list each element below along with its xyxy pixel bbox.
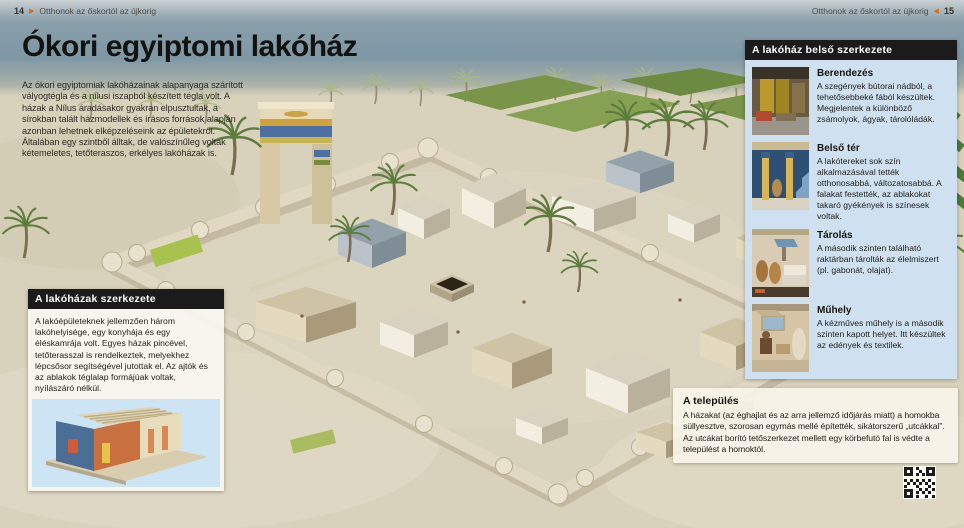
page-title: Ókori egyiptomi lakóház bbox=[22, 30, 357, 64]
section-furnishings: Berendezés A szegények bútorai nádból, a… bbox=[752, 67, 950, 135]
furnishings-photo bbox=[752, 67, 809, 135]
book-title-right: Otthonok az őskortól az újkorig bbox=[812, 6, 929, 16]
section-text: A lakótereket sok szín alkalmazásával te… bbox=[817, 156, 950, 222]
house-structure-text: A lakóépületeknek jellemzően három lakóh… bbox=[28, 309, 224, 399]
workshop-photo bbox=[752, 304, 809, 372]
page-header-right: Otthonok az őskortól az újkorig ◀ 15 bbox=[812, 6, 954, 16]
book-spread: 14 ▶ Otthonok az őskortól az újkorig Ott… bbox=[0, 0, 964, 528]
page-header-left: 14 ▶ Otthonok az őskortól az újkorig bbox=[14, 6, 156, 16]
section-storage: Tárolás A második szinten található rakt… bbox=[752, 229, 950, 297]
page-number-right: 15 bbox=[944, 6, 954, 16]
book-title-left: Otthonok az őskortól az újkorig bbox=[39, 6, 156, 16]
forward-arrow-icon: ▶ bbox=[29, 8, 34, 15]
qr-code bbox=[903, 466, 936, 499]
interior-structure-header: A lakóház belső szerkezete bbox=[745, 40, 957, 60]
section-title: Berendezés bbox=[817, 68, 950, 79]
section-title: Tárolás bbox=[817, 230, 950, 241]
house-structure-header: A lakóházak szerkezete bbox=[28, 289, 224, 309]
section-interior: Belső tér A lakótereket sok szín alkalma… bbox=[752, 142, 950, 222]
interior-structure-panel: A lakóház belső szerkezete bbox=[745, 40, 957, 379]
cutaway-model-graphic bbox=[32, 399, 220, 487]
settlement-text: A házakat (az éghajlat és az arra jellem… bbox=[683, 410, 948, 455]
settlement-box: A település A házakat (az éghajlat és az… bbox=[673, 388, 958, 463]
interior-photo bbox=[752, 142, 809, 210]
section-text: A szegények bútorai nádból, a tehetősebb… bbox=[817, 81, 950, 125]
page-number-left: 14 bbox=[14, 6, 24, 16]
section-title: Műhely bbox=[817, 305, 950, 316]
house-structure-box: A lakóházak szerkezete A lakóépületeknek… bbox=[28, 289, 224, 491]
section-text: A második szinten található raktárban tá… bbox=[817, 243, 950, 276]
back-arrow-icon: ◀ bbox=[934, 8, 939, 15]
section-title: Belső tér bbox=[817, 143, 950, 154]
cutaway-model-photo bbox=[28, 399, 224, 491]
intro-paragraph: Az ókori egyiptomiak lakóházainak alapan… bbox=[22, 80, 254, 160]
section-workshop: Műhely A kézműves műhely is a második sz… bbox=[752, 304, 950, 372]
section-text: A kézműves műhely is a második szinten k… bbox=[817, 318, 950, 351]
settlement-header: A település bbox=[683, 395, 948, 407]
storage-photo bbox=[752, 229, 809, 297]
